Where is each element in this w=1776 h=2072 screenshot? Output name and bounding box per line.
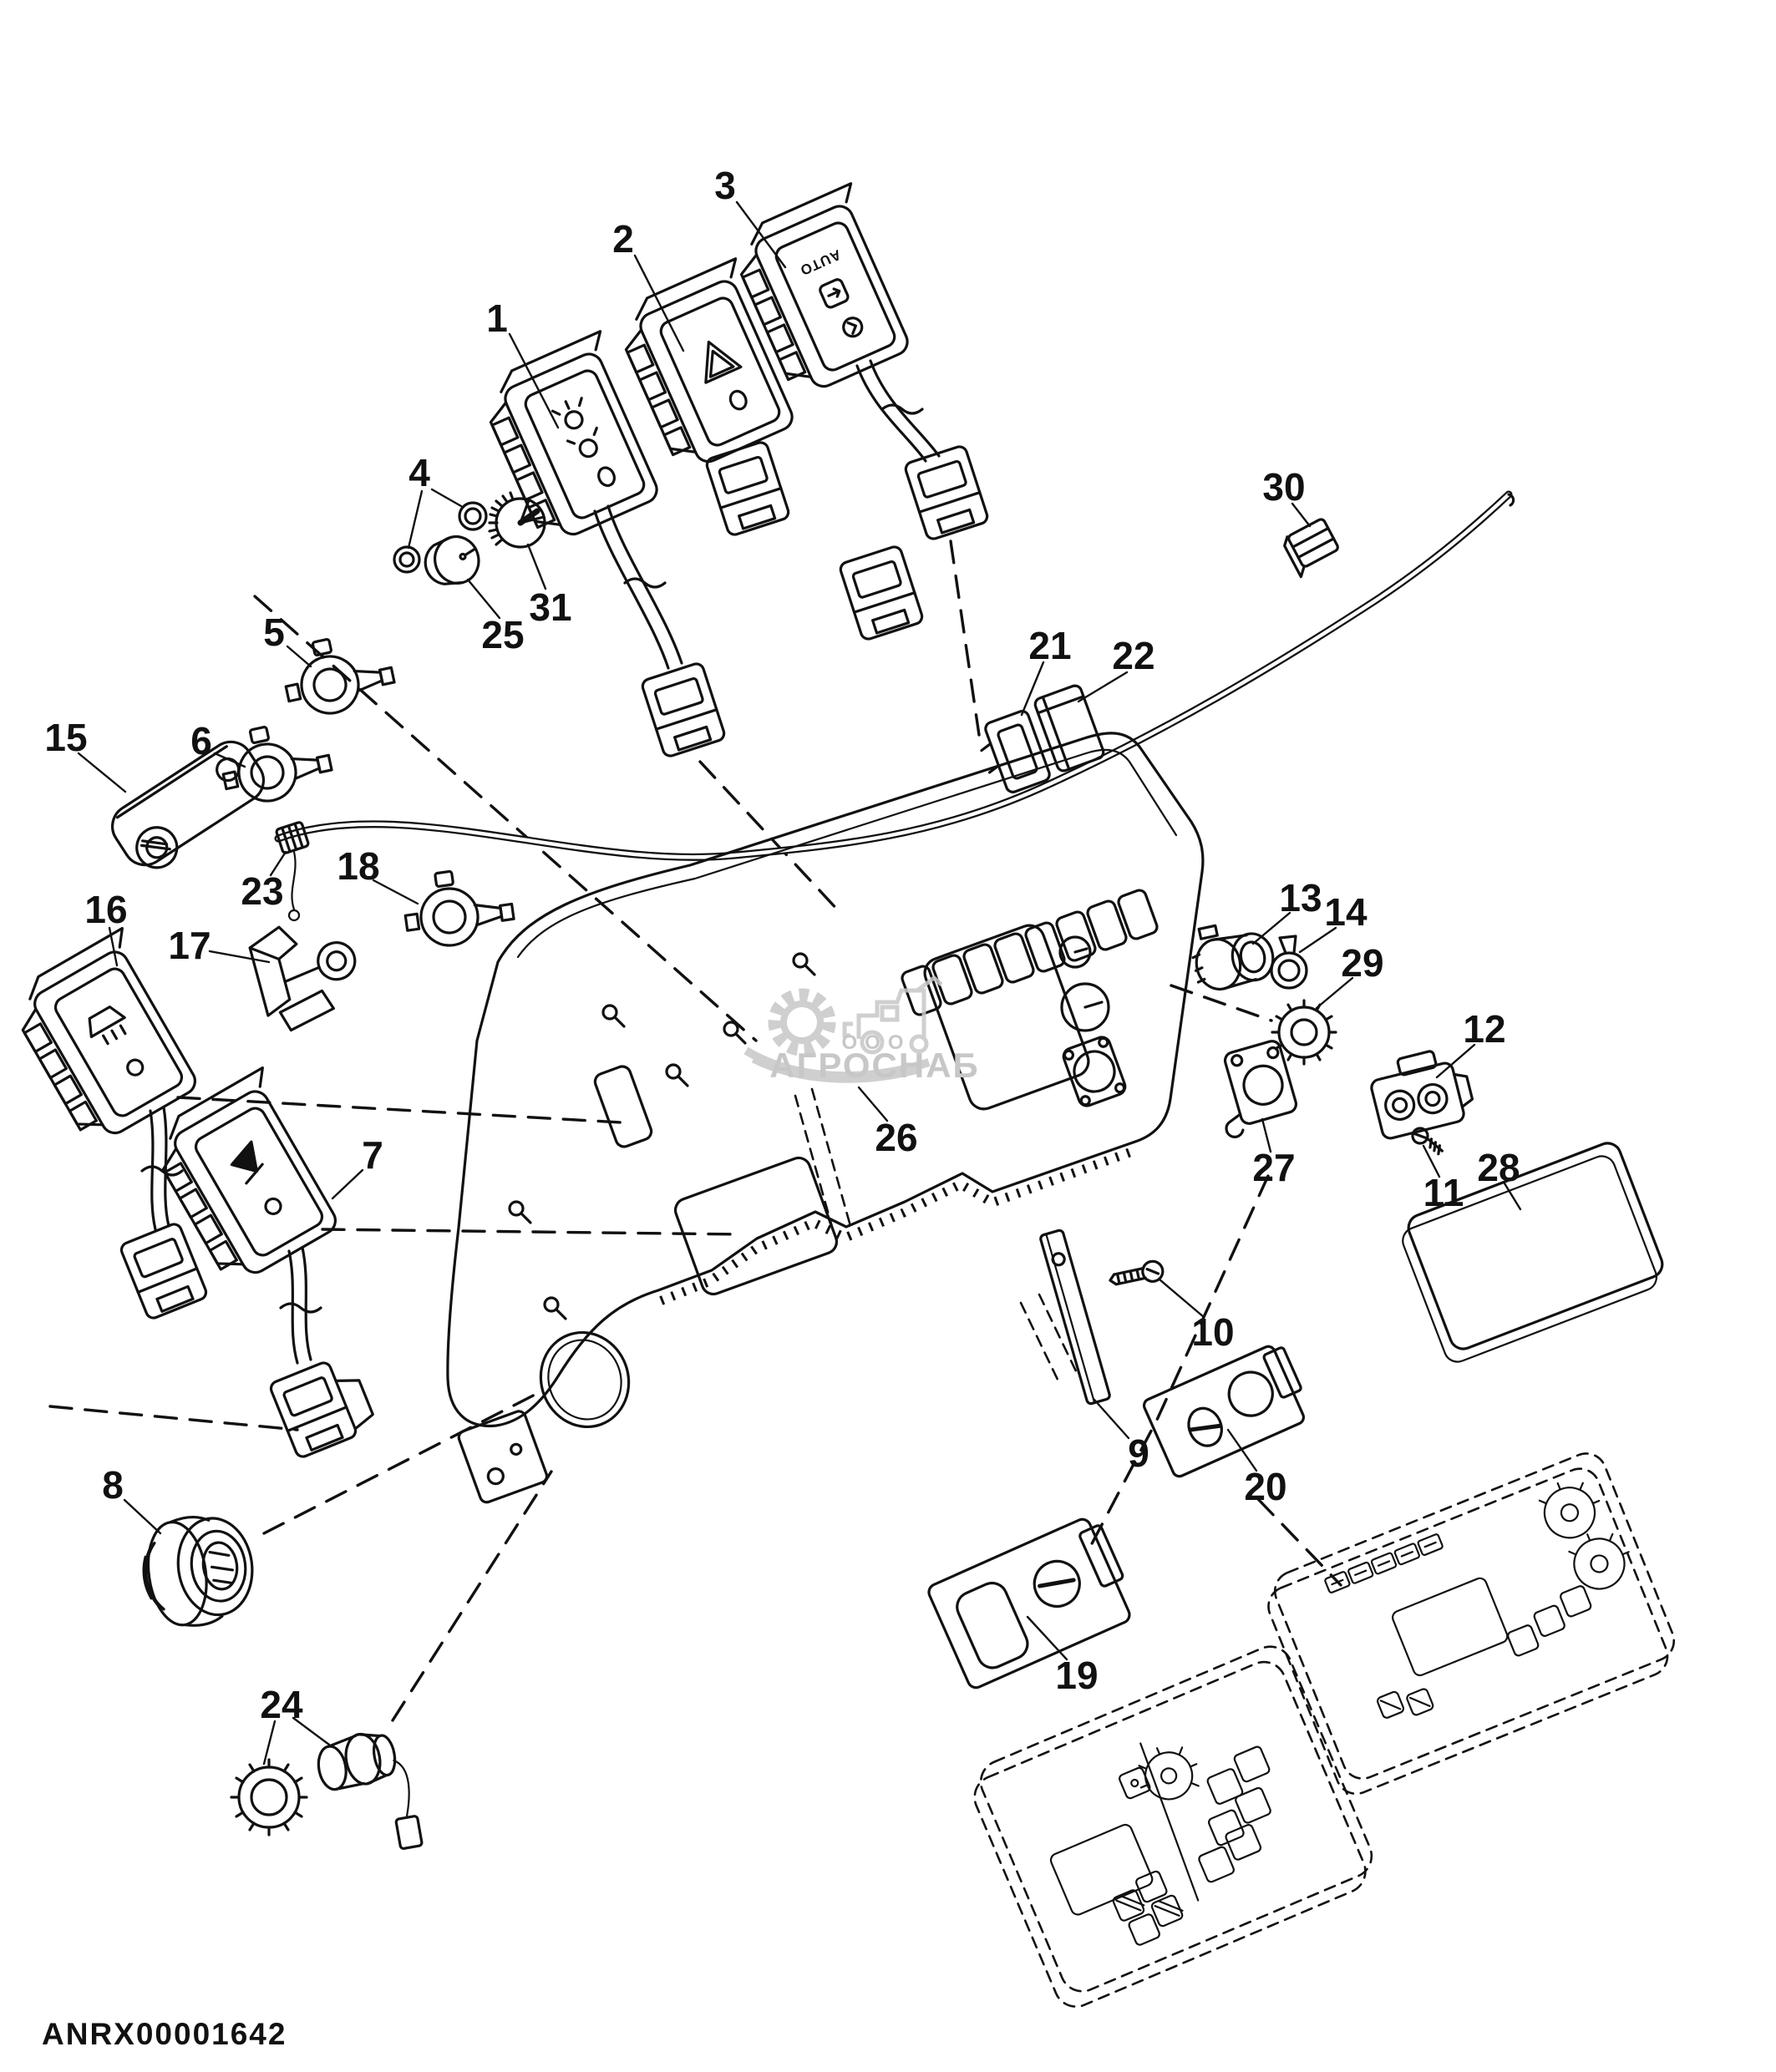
- callout-16: 16: [84, 887, 127, 932]
- leader-line-8: [124, 1500, 160, 1533]
- rocker-switch-2: [611, 259, 807, 475]
- leader-line-2: [635, 256, 683, 351]
- footer-part-code: ANRX00001642: [42, 2017, 287, 2052]
- leader-line-31: [528, 545, 545, 589]
- callout-8: 8: [102, 1462, 124, 1507]
- leader-line-9: [1094, 1400, 1129, 1438]
- ring-4b: [459, 503, 486, 529]
- callout-30: 30: [1262, 464, 1305, 509]
- parts-diagram-page: AUTO: [0, 0, 1776, 2072]
- callout-26: 26: [875, 1115, 917, 1160]
- callout-5: 5: [263, 610, 285, 655]
- callout-17: 17: [168, 923, 211, 968]
- cable-clip-30: [1281, 518, 1342, 576]
- callout-leaders: [79, 202, 1520, 1764]
- callout-13: 13: [1279, 875, 1322, 920]
- knob-13: [1188, 915, 1278, 994]
- control-panel-reference-a: [963, 1640, 1383, 2014]
- ring-4a: [394, 547, 419, 572]
- screw-11: [1409, 1126, 1447, 1154]
- screw-10: [1108, 1259, 1165, 1290]
- sensor-18: [400, 864, 516, 951]
- harness-connector: [705, 441, 790, 537]
- leader-line-18: [373, 880, 418, 904]
- callout-11: 11: [1423, 1170, 1464, 1215]
- leader-line-4: [408, 491, 422, 548]
- callout-29: 29: [1341, 940, 1383, 985]
- assembly-dashed-lines: [50, 541, 1341, 1720]
- harness-connector: [904, 445, 989, 541]
- plate-19: [926, 1513, 1140, 1690]
- ring-14: [1271, 936, 1307, 988]
- callout-4: 4: [408, 450, 430, 495]
- harness-connector: [839, 545, 924, 641]
- bracket-17: [246, 910, 368, 1035]
- callout-24: 24: [260, 1682, 302, 1727]
- cap-25: [420, 532, 484, 591]
- leader-line-5: [287, 646, 311, 666]
- rocker-switch-1: [475, 332, 672, 548]
- callout-10: 10: [1191, 1310, 1234, 1355]
- callout-25: 25: [481, 612, 524, 657]
- rocker-switch-3: AUTO: [726, 184, 922, 400]
- plate-20: [1142, 1340, 1314, 1478]
- callout-27: 27: [1252, 1145, 1295, 1190]
- control-panel-reference-b: [1258, 1447, 1684, 1800]
- callout-20: 20: [1244, 1464, 1286, 1509]
- harness-connector: [641, 662, 726, 758]
- switch-auto-label: AUTO: [797, 246, 843, 278]
- callout-6: 6: [190, 718, 212, 763]
- callout-23: 23: [241, 869, 283, 914]
- callout-31: 31: [529, 585, 571, 630]
- leader-line-1: [510, 334, 558, 428]
- bracket-27: [1206, 1039, 1301, 1138]
- callout-14: 14: [1324, 889, 1367, 935]
- callout-15: 15: [44, 715, 87, 760]
- harness-connector: [269, 1353, 378, 1459]
- callout-18: 18: [337, 843, 379, 889]
- leader-line-21: [1022, 662, 1043, 715]
- callout-22: 22: [1112, 633, 1154, 678]
- callout-3: 3: [714, 163, 736, 208]
- leader-line-4: [432, 489, 461, 506]
- leader-line-7: [332, 1170, 363, 1198]
- callout-19: 19: [1055, 1653, 1098, 1698]
- leader-line-24: [264, 1721, 275, 1764]
- callout-9: 9: [1128, 1431, 1149, 1476]
- harness-cable: [278, 494, 1514, 857]
- watermark-name-text: АГРОСНАБ: [769, 1046, 979, 1086]
- sensor-5: [278, 627, 398, 722]
- callout-12: 12: [1463, 1006, 1505, 1051]
- leader-line-3: [737, 202, 785, 267]
- callout-2: 2: [612, 216, 634, 261]
- knob-31: [490, 493, 545, 547]
- lighter-plug-24: [314, 1727, 422, 1861]
- callout-28: 28: [1477, 1145, 1520, 1190]
- callout-7: 7: [362, 1132, 383, 1178]
- harness-connector: [119, 1222, 208, 1320]
- callout-21: 21: [1028, 623, 1071, 668]
- callout-1: 1: [486, 296, 508, 341]
- lighter-cap-24: [231, 1760, 307, 1835]
